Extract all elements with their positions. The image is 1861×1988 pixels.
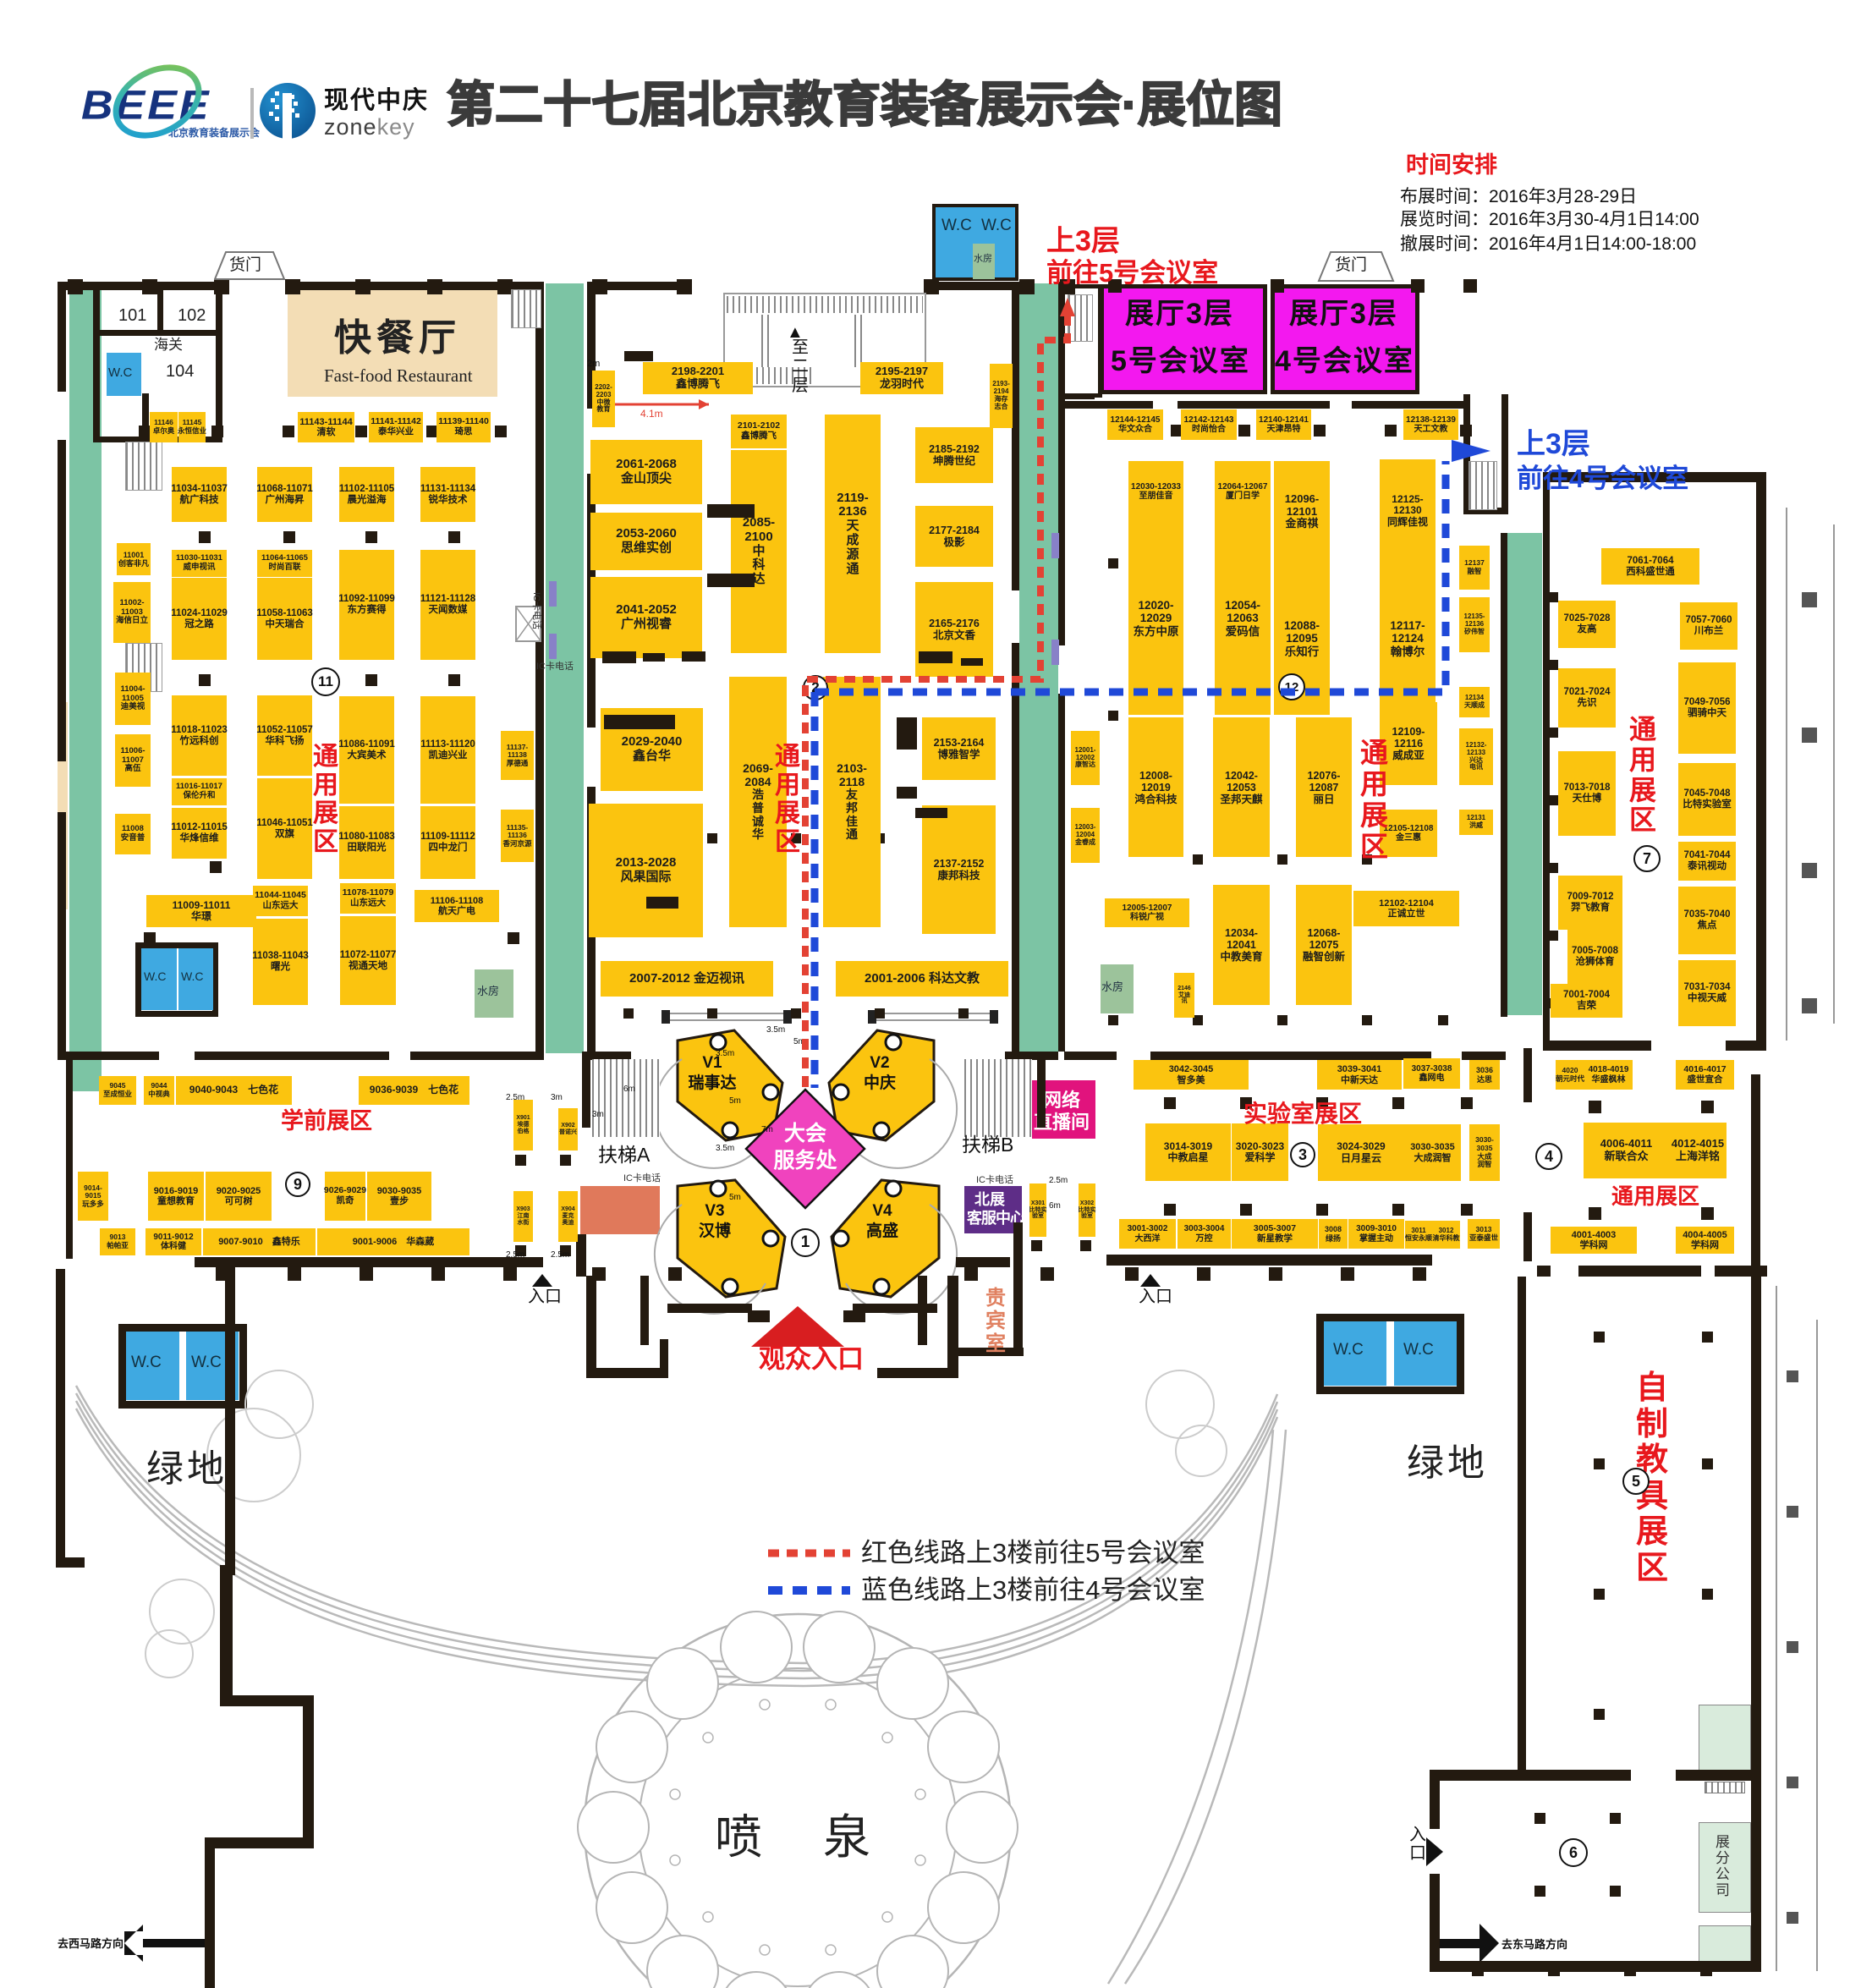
svg-text:V2: V2: [870, 1054, 889, 1072]
svg-text:V3: V3: [705, 1202, 724, 1220]
svg-text:高盛: 高盛: [866, 1221, 898, 1240]
svg-text:瑞事达: 瑞事达: [688, 1073, 736, 1092]
svg-text:V4: V4: [872, 1202, 892, 1220]
svg-text:中庆: 中庆: [864, 1073, 896, 1092]
svg-text:服务处: 服务处: [773, 1149, 837, 1172]
svg-text:大会: 大会: [784, 1122, 826, 1145]
svg-text:汉博: 汉博: [699, 1221, 731, 1240]
